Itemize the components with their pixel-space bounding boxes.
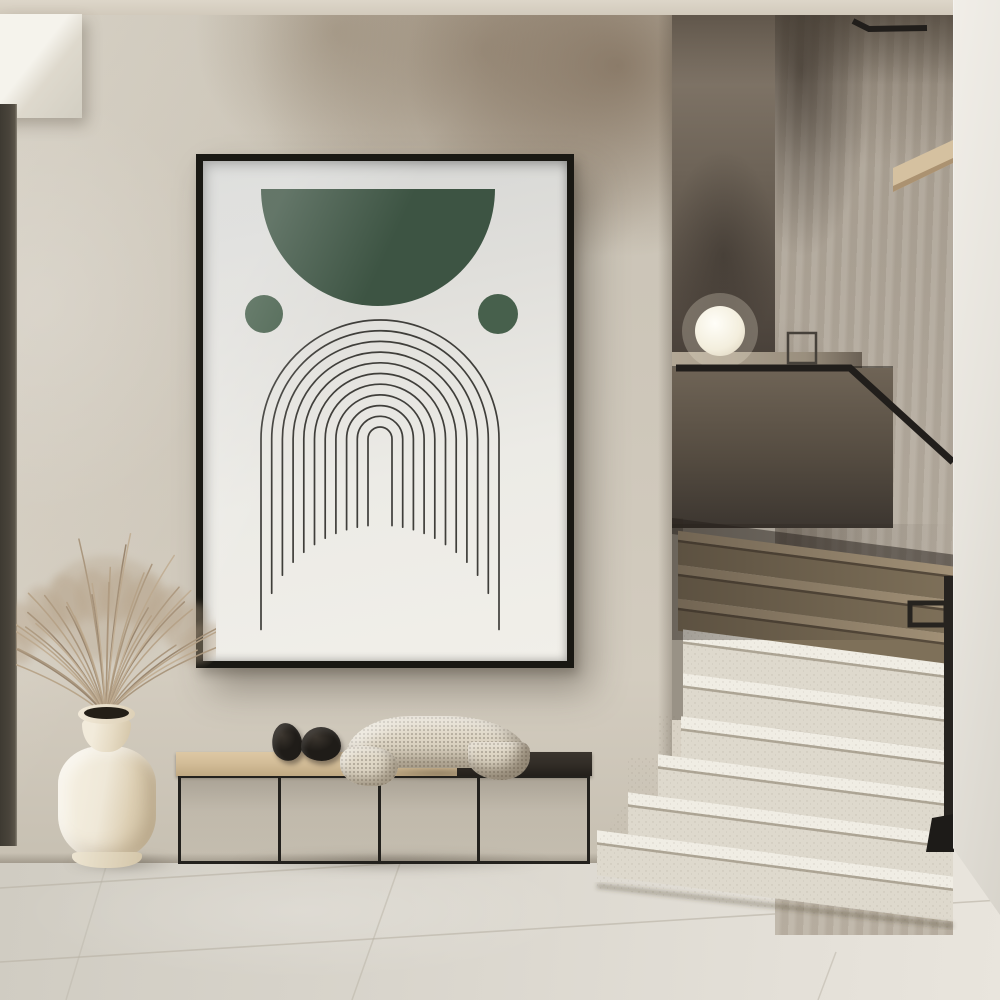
poster-glass-reflection bbox=[203, 161, 567, 661]
hallway-scene bbox=[0, 0, 1000, 1000]
foreground-right-wall bbox=[953, 0, 1000, 1000]
vase-foot bbox=[72, 852, 142, 868]
pampas-grass bbox=[16, 520, 216, 720]
bench-frame-divider bbox=[278, 778, 281, 861]
ceramic-vase bbox=[56, 700, 160, 870]
pony-wall-face bbox=[672, 368, 893, 528]
vase-opening bbox=[84, 707, 129, 719]
lower-steps-speckle bbox=[597, 628, 953, 930]
bench-metal-frame bbox=[178, 776, 590, 864]
bench-frame-divider bbox=[477, 778, 480, 861]
poster-frame bbox=[196, 154, 574, 668]
throw-blanket bbox=[340, 710, 535, 780]
vase-body bbox=[58, 746, 156, 858]
sphere-lamp bbox=[695, 306, 745, 356]
bench-frame-divider bbox=[378, 778, 381, 861]
blanket-flap bbox=[340, 746, 398, 786]
black-stone-decor bbox=[301, 727, 341, 761]
